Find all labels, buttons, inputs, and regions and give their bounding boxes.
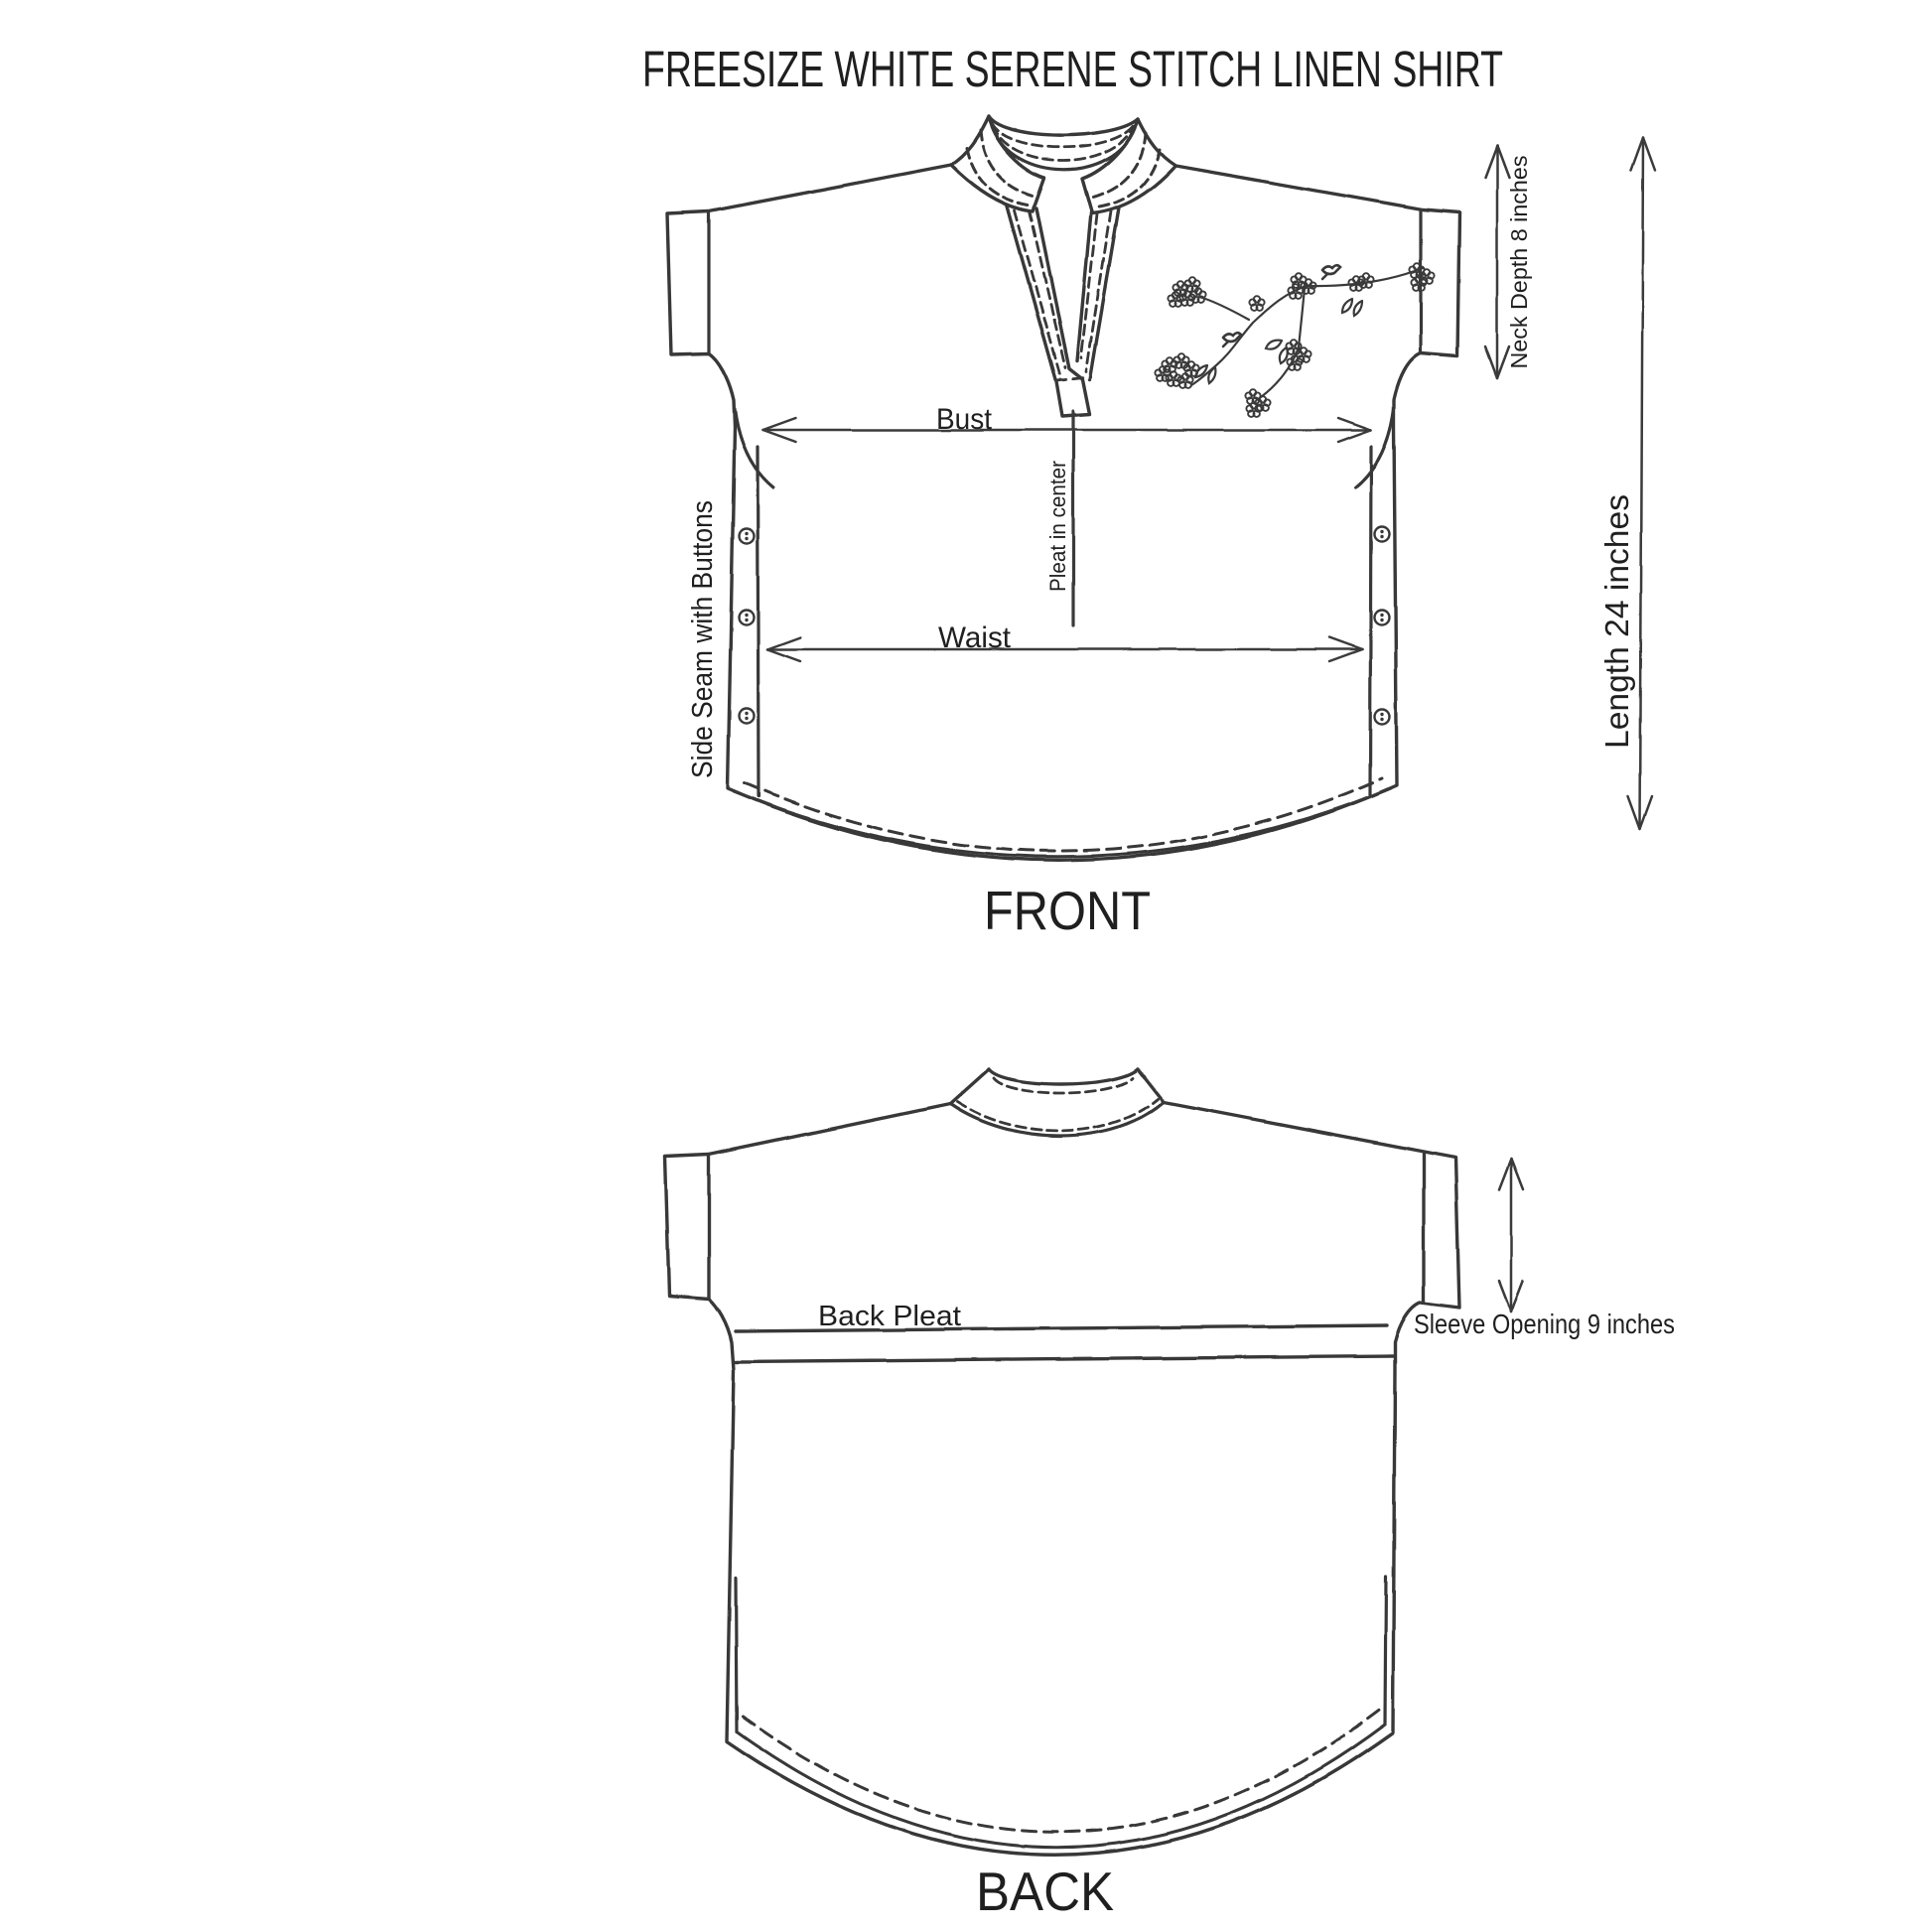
svg-text:Back Pleat: Back Pleat [818,1301,961,1332]
svg-text:FRONT: FRONT [984,880,1151,941]
svg-text:Sleeve Opening 9 inches: Sleeve Opening 9 inches [1414,1309,1675,1339]
svg-text:Neck Depth 8 inches: Neck Depth 8 inches [1506,156,1532,369]
svg-text:Pleat in center: Pleat in center [1045,461,1070,592]
svg-text:FREESIZE WHITE SERENE STITCH L: FREESIZE WHITE SERENE STITCH LINEN SHIRT [642,41,1503,97]
svg-text:Side Seam with Buttons: Side Seam with Buttons [687,500,719,778]
svg-text:Bust: Bust [936,403,993,436]
svg-text:Waist: Waist [938,621,1012,654]
svg-text:BACK: BACK [976,1861,1114,1922]
svg-text:Length 24 inches: Length 24 inches [1598,494,1635,749]
